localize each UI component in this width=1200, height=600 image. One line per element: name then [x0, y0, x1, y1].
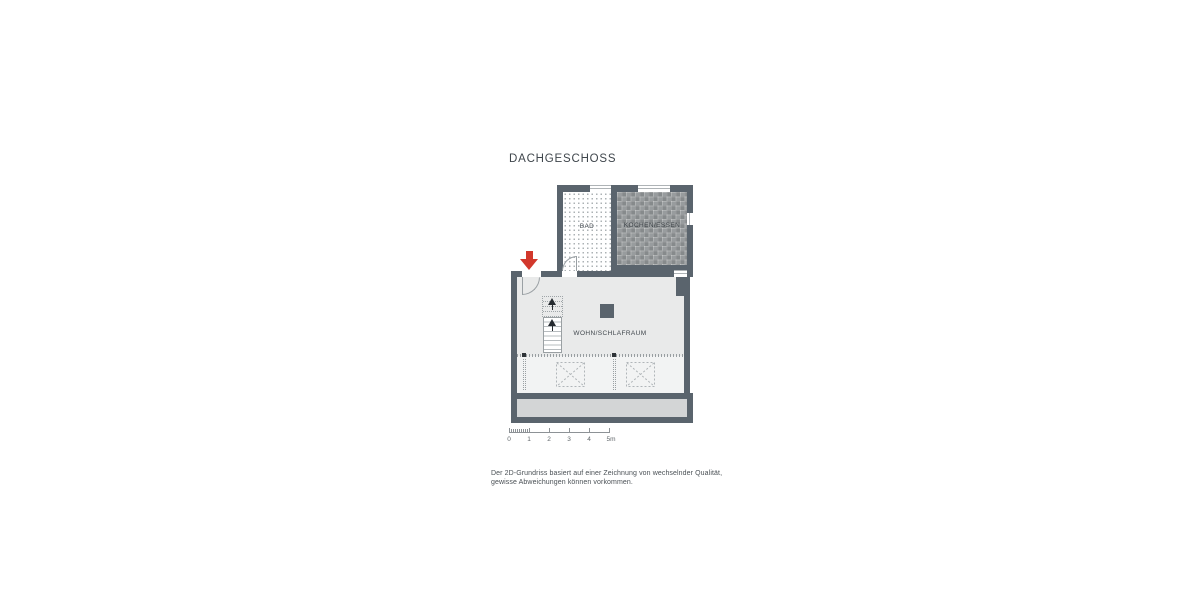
window-top-1: [590, 185, 611, 192]
scale-bar: 0 1 2 3 4 5m: [509, 428, 609, 444]
stairs-up-arrow-stem: [552, 305, 553, 310]
floor-plan: BAD KOCHEN/ESSEN WOHN/SCHLAFRAUM: [0, 0, 1200, 600]
wall-stub-right: [676, 277, 690, 296]
roof-line-marker: [612, 353, 616, 357]
stairs-up-arrow-icon: [548, 319, 556, 326]
room-label-wohn-schlafraum: WOHN/SCHLAFRAUM: [560, 330, 660, 337]
stairs-up-arrow-stem: [552, 326, 553, 331]
window-right: [687, 213, 693, 225]
chimney: [600, 304, 614, 318]
scale-tick-label: 0: [507, 436, 511, 443]
floor-plan-page: DACHGESCHOSS: [0, 0, 1200, 600]
bad-door-opening: [562, 271, 577, 277]
disclaimer-line-2: gewisse Abweichungen können vorkommen.: [491, 479, 751, 488]
roof-edge-dashed-line: [517, 354, 684, 357]
room-label-bad: BAD: [563, 223, 611, 230]
skylight-icon: [626, 362, 655, 387]
scale-fine-ticks: [509, 429, 529, 432]
disclaimer-line-1: Der 2D-Grundriss basiert auf einer Zeich…: [491, 470, 751, 479]
room-label-kochen-essen: KOCHEN/ESSEN: [617, 222, 687, 229]
scale-tick-label: 2: [547, 436, 551, 443]
skylight-icon: [556, 362, 585, 387]
roof-dotted-divider: [613, 359, 616, 390]
balcony-strip-floor: [517, 399, 687, 417]
window-top-2: [638, 185, 670, 192]
scale-tick-label: 3: [567, 436, 571, 443]
window-kitchen-bottom: [674, 270, 687, 277]
stairs-up-arrow-icon: [548, 298, 556, 305]
entrance-arrow-icon: [520, 251, 539, 270]
roof-dotted-divider: [523, 359, 526, 390]
roof-slope-area: [517, 356, 684, 393]
scale-tick-label: 1: [527, 436, 531, 443]
scale-tick-label: 4: [587, 436, 591, 443]
disclaimer-text: Der 2D-Grundriss basiert auf einer Zeich…: [491, 470, 751, 488]
roof-line-marker: [522, 353, 526, 357]
scale-tick-label: 5m: [606, 436, 615, 443]
